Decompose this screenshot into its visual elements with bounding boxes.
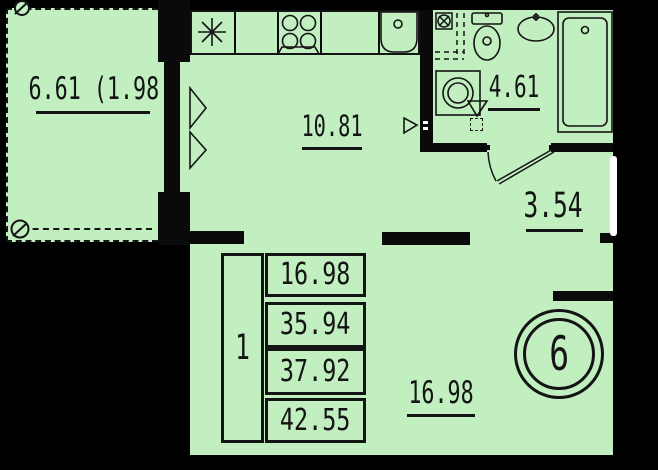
panel-triangle-icon xyxy=(403,117,421,135)
socket-mark xyxy=(423,127,428,130)
socket-mark xyxy=(423,121,428,124)
kitchen-label-underline xyxy=(302,147,362,150)
kitchen-sink-icon xyxy=(378,10,420,55)
toilet-icon xyxy=(470,11,504,63)
counter-divider xyxy=(234,10,236,55)
entry-door-leaf xyxy=(610,156,617,236)
unit-number: 6 xyxy=(549,331,569,378)
room-balcony xyxy=(6,8,158,242)
room-count-value: 1 xyxy=(235,331,250,366)
wall-kitchen-living-left xyxy=(190,231,244,244)
bathtub-icon xyxy=(557,11,614,134)
hallway-label-underline xyxy=(526,229,583,232)
counter-divider xyxy=(320,10,322,55)
table-value: 42.55 xyxy=(280,406,350,436)
table-row: 16.98 xyxy=(265,253,366,297)
wall-hall-top-left xyxy=(420,143,487,152)
wall-hall-top-right xyxy=(551,143,613,152)
balcony-label-underline xyxy=(36,111,150,114)
washbasin-icon xyxy=(515,11,557,43)
unit-number-inner-ring: 6 xyxy=(523,318,595,390)
table-row: 42.55 xyxy=(265,398,366,443)
stove-icon xyxy=(277,10,320,55)
fridge-icon xyxy=(190,10,234,55)
living-area-label: 16.98 xyxy=(406,378,476,409)
door-swing-icon xyxy=(480,140,560,190)
section-marker-icon xyxy=(12,0,34,18)
floor-plan: 6.61 (1.98 ) 10.81 xyxy=(0,0,658,470)
wall-kitchen-living-mid xyxy=(382,232,470,245)
bathroom-label-underline xyxy=(488,108,540,111)
table-row: 37.92 xyxy=(265,348,366,395)
window-casement-icon xyxy=(189,86,209,171)
table-value: 37.92 xyxy=(280,357,350,387)
drain-square xyxy=(470,118,483,131)
kitchen-area-label: 10.81 xyxy=(290,112,374,141)
wall-kitchen-bathroom xyxy=(420,10,433,152)
unit-number-badge: 6 xyxy=(514,309,604,399)
bathroom-area-label: 4.61 xyxy=(479,73,549,103)
table-row: 35.94 xyxy=(265,302,366,348)
vent-shaft-icon xyxy=(434,12,474,68)
table-value: 35.94 xyxy=(280,310,350,340)
table-value: 16.98 xyxy=(280,260,350,290)
window-glass-strip xyxy=(158,62,164,192)
table-room-count-cell: 1 xyxy=(221,253,264,443)
section-marker-icon xyxy=(9,219,33,240)
hallway-area-label: 3.54 xyxy=(518,189,588,224)
wall-hall-living xyxy=(553,291,613,301)
balcony-inner-dashed-line xyxy=(12,228,152,230)
balcony-area-label: 6.61 (1.98 ) xyxy=(29,74,134,105)
living-label-underline xyxy=(407,414,475,417)
